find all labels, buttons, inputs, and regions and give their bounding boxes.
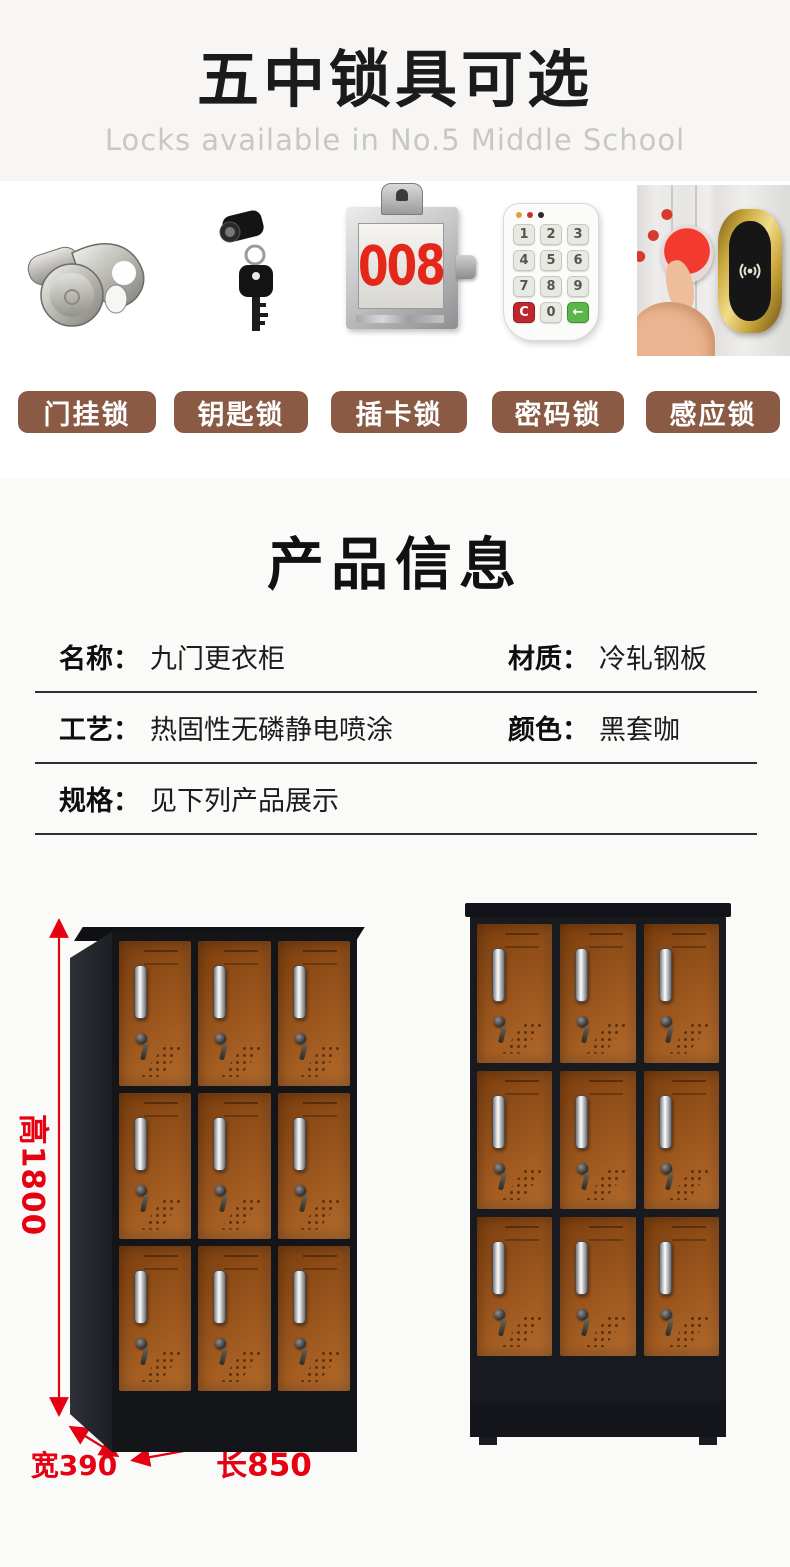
door-handle: [213, 1270, 226, 1324]
door-key-icon: [140, 1347, 149, 1365]
door-key-icon: [498, 1172, 507, 1190]
field-label-color: 颜色：: [508, 708, 589, 747]
header-section: 五中锁具可选 Locks available in No.5 Middle Sc…: [0, 0, 790, 181]
page-subtitle: Locks available in No.5 Middle School: [0, 123, 790, 157]
door-handle: [293, 965, 306, 1019]
locker-foot: [699, 1437, 717, 1445]
locker-side-panel: [70, 932, 112, 1452]
door-handle: [492, 1095, 505, 1149]
door-vent-icon: [303, 1255, 337, 1270]
door-keyhole-icon: [577, 1163, 588, 1174]
door-vent-icon: [505, 1226, 539, 1241]
locker-door: [278, 1246, 350, 1391]
keypad-key: 5: [540, 250, 562, 271]
door-handle: [213, 1117, 226, 1171]
hand: [637, 302, 715, 356]
hasp-lock-button[interactable]: 门挂锁: [18, 391, 156, 433]
table-row: 规格： 见下列产品展示: [35, 764, 757, 835]
locker-door: [278, 941, 350, 1086]
field-value-process: 热固性无磷静电喷涂: [150, 708, 393, 747]
keypad-key: 3: [567, 224, 589, 245]
door-vent-dots-icon: [668, 1022, 712, 1054]
door-handle: [575, 1095, 588, 1149]
card-lock-number: 008: [358, 233, 445, 299]
led-black: [538, 212, 544, 218]
door-vent-dots-icon: [585, 1315, 629, 1347]
keypad-key: C: [513, 302, 535, 323]
locker-door: [644, 924, 719, 1063]
table-row: 工艺： 热固性无磷静电喷涂 颜色： 黑套咖: [35, 693, 757, 764]
door-key-icon: [219, 1043, 228, 1061]
table-cell: 规格： 见下列产品展示: [35, 779, 508, 818]
door-key-icon: [581, 1026, 590, 1044]
locker-door: [278, 1093, 350, 1238]
door-vent-dots-icon: [668, 1315, 712, 1347]
table-cell: 工艺： 热固性无磷静电喷涂: [35, 708, 508, 747]
keypad-grid: 123456789C0←: [513, 224, 589, 323]
locker-front: [112, 932, 357, 1452]
locker-image-front: [465, 903, 731, 1443]
door-key-icon: [299, 1043, 308, 1061]
field-label-material: 材质：: [508, 637, 589, 676]
field-value-color: 黑套咖: [599, 708, 680, 747]
field-value-spec: 见下列产品展示: [150, 779, 339, 818]
locker-image-perspective: [60, 915, 360, 1460]
door-handle: [492, 1241, 505, 1295]
locker-door: [119, 1093, 191, 1238]
keypad-key: 4: [513, 250, 535, 271]
key-lock-button[interactable]: 钥匙锁: [174, 391, 308, 433]
locker-door: [560, 924, 635, 1063]
product-info-table: 名称： 九门更衣柜 材质： 冷轧钢板 工艺： 热固性无磷静电喷涂 颜色： 黑套咖…: [35, 622, 757, 835]
field-label-spec: 规格：: [59, 779, 140, 818]
locker-body: [470, 917, 726, 1401]
field-value-material: 冷轧钢板: [599, 637, 707, 676]
card-lock-button[interactable]: 插卡锁: [331, 391, 467, 433]
height-dimension-label: 高1800: [14, 1114, 59, 1236]
door-key-icon: [581, 1172, 590, 1190]
hasp-lock-icon: [20, 223, 162, 338]
door-key-icon: [299, 1195, 308, 1213]
locker-top-cap: [465, 903, 731, 917]
door-handle: [134, 1117, 147, 1171]
locker-door: [560, 1217, 635, 1356]
door-handle: [213, 965, 226, 1019]
door-vent-icon: [224, 950, 258, 965]
locker-door: [119, 941, 191, 1086]
locker-door: [119, 1246, 191, 1391]
door-vent-icon: [505, 1080, 539, 1095]
lock-images-row: 008 123456789C0←: [0, 181, 790, 360]
keypad-key: 6: [567, 250, 589, 271]
door-key-icon: [140, 1195, 149, 1213]
door-key-icon: [665, 1026, 674, 1044]
card-lock-panel: 008: [358, 223, 444, 309]
door-key-icon: [219, 1347, 228, 1365]
door-vent-icon: [589, 933, 623, 948]
keypad-key: 0: [540, 302, 562, 323]
password-lock-button[interactable]: 密码锁: [492, 391, 624, 433]
lock-labels-row: 门挂锁 钥匙锁 插卡锁 密码锁 感应锁: [0, 360, 790, 478]
door-handle: [293, 1117, 306, 1171]
locker-door: [198, 1093, 270, 1238]
locker-door: [644, 1217, 719, 1356]
door-vent-dots-icon: [501, 1168, 545, 1200]
locker-base: [470, 1401, 726, 1437]
door-vent-dots-icon: [501, 1315, 545, 1347]
door-handle: [492, 948, 505, 1002]
door-keyhole-icon: [215, 1338, 226, 1349]
door-vent-icon: [144, 950, 178, 965]
field-value-name: 九门更衣柜: [150, 637, 285, 676]
locker-door: [477, 924, 552, 1063]
field-label-name: 名称：: [59, 637, 140, 676]
page-title: 五中锁具可选: [0, 0, 790, 121]
keypad-key: 9: [567, 276, 589, 297]
product-info-title: 产品信息: [0, 519, 790, 601]
door-key-icon: [581, 1319, 590, 1337]
door-handle: [659, 948, 672, 1002]
door-key-icon: [299, 1347, 308, 1365]
locker-door: [198, 941, 270, 1086]
door-key-icon: [219, 1195, 228, 1213]
card-lock-latch: [456, 255, 476, 279]
door-vent-icon: [589, 1226, 623, 1241]
card-lock-icon: 008: [346, 207, 458, 329]
door-handle: [575, 1241, 588, 1295]
card-lock-clip: [381, 183, 423, 215]
keypad-key: 2: [540, 224, 562, 245]
door-key-icon: [498, 1319, 507, 1337]
door-handle: [659, 1095, 672, 1149]
door-key-icon: [665, 1319, 674, 1337]
door-handle: [134, 965, 147, 1019]
door-vent-dots-icon: [585, 1022, 629, 1054]
table-cell: 颜色： 黑套咖: [508, 708, 680, 747]
key-lock-icon: [203, 207, 303, 342]
door-vent-icon: [144, 1255, 178, 1270]
door-vent-icon: [672, 933, 706, 948]
locker-door: [477, 1217, 552, 1356]
locker-door: [198, 1246, 270, 1391]
door-vent-icon: [224, 1255, 258, 1270]
rfid-lock-panel: [729, 221, 771, 321]
keypad-key: ←: [567, 302, 589, 323]
table-cell: 名称： 九门更衣柜: [35, 637, 508, 676]
door-vent-icon: [505, 933, 539, 948]
door-vent-icon: [672, 1080, 706, 1095]
led-red: [527, 212, 533, 218]
locker-foot: [479, 1437, 497, 1445]
door-key-icon: [665, 1172, 674, 1190]
door-vent-icon: [144, 1102, 178, 1117]
door-vent-icon: [589, 1080, 623, 1095]
keypad-key: 7: [513, 276, 535, 297]
door-key-icon: [140, 1043, 149, 1061]
door-vent-icon: [303, 1102, 337, 1117]
locker-doors-grid: [119, 941, 350, 1391]
door-vent-dots-icon: [668, 1168, 712, 1200]
door-handle: [659, 1241, 672, 1295]
locker-door: [477, 1071, 552, 1210]
door-vent-icon: [303, 950, 337, 965]
table-row: 名称： 九门更衣柜 材质： 冷轧钢板: [35, 622, 757, 693]
induction-lock-button[interactable]: 感应锁: [646, 391, 780, 433]
locker-door: [560, 1071, 635, 1210]
table-cell: 材质： 冷轧钢板: [508, 637, 707, 676]
locker-door: [644, 1071, 719, 1210]
door-vent-dots-icon: [585, 1168, 629, 1200]
door-vent-icon: [672, 1226, 706, 1241]
keypad-leds: [516, 212, 544, 218]
door-handle: [575, 948, 588, 1002]
rfid-lock-body: [718, 209, 782, 333]
led-amber: [516, 212, 522, 218]
keypad-key: 1: [513, 224, 535, 245]
product-display-section: 高1800 宽390 长850: [0, 860, 790, 1567]
rfid-lock-icon: [637, 185, 790, 356]
door-vent-icon: [224, 1102, 258, 1117]
door-handle: [293, 1270, 306, 1324]
keypad-key: 8: [540, 276, 562, 297]
card-lock-screws: [356, 315, 444, 323]
locker-doors-grid: [477, 924, 719, 1356]
door-handle: [134, 1270, 147, 1324]
door-vent-dots-icon: [501, 1022, 545, 1054]
keypad-lock-icon: 123456789C0←: [503, 203, 599, 341]
field-label-process: 工艺：: [59, 708, 140, 747]
door-key-icon: [498, 1026, 507, 1044]
